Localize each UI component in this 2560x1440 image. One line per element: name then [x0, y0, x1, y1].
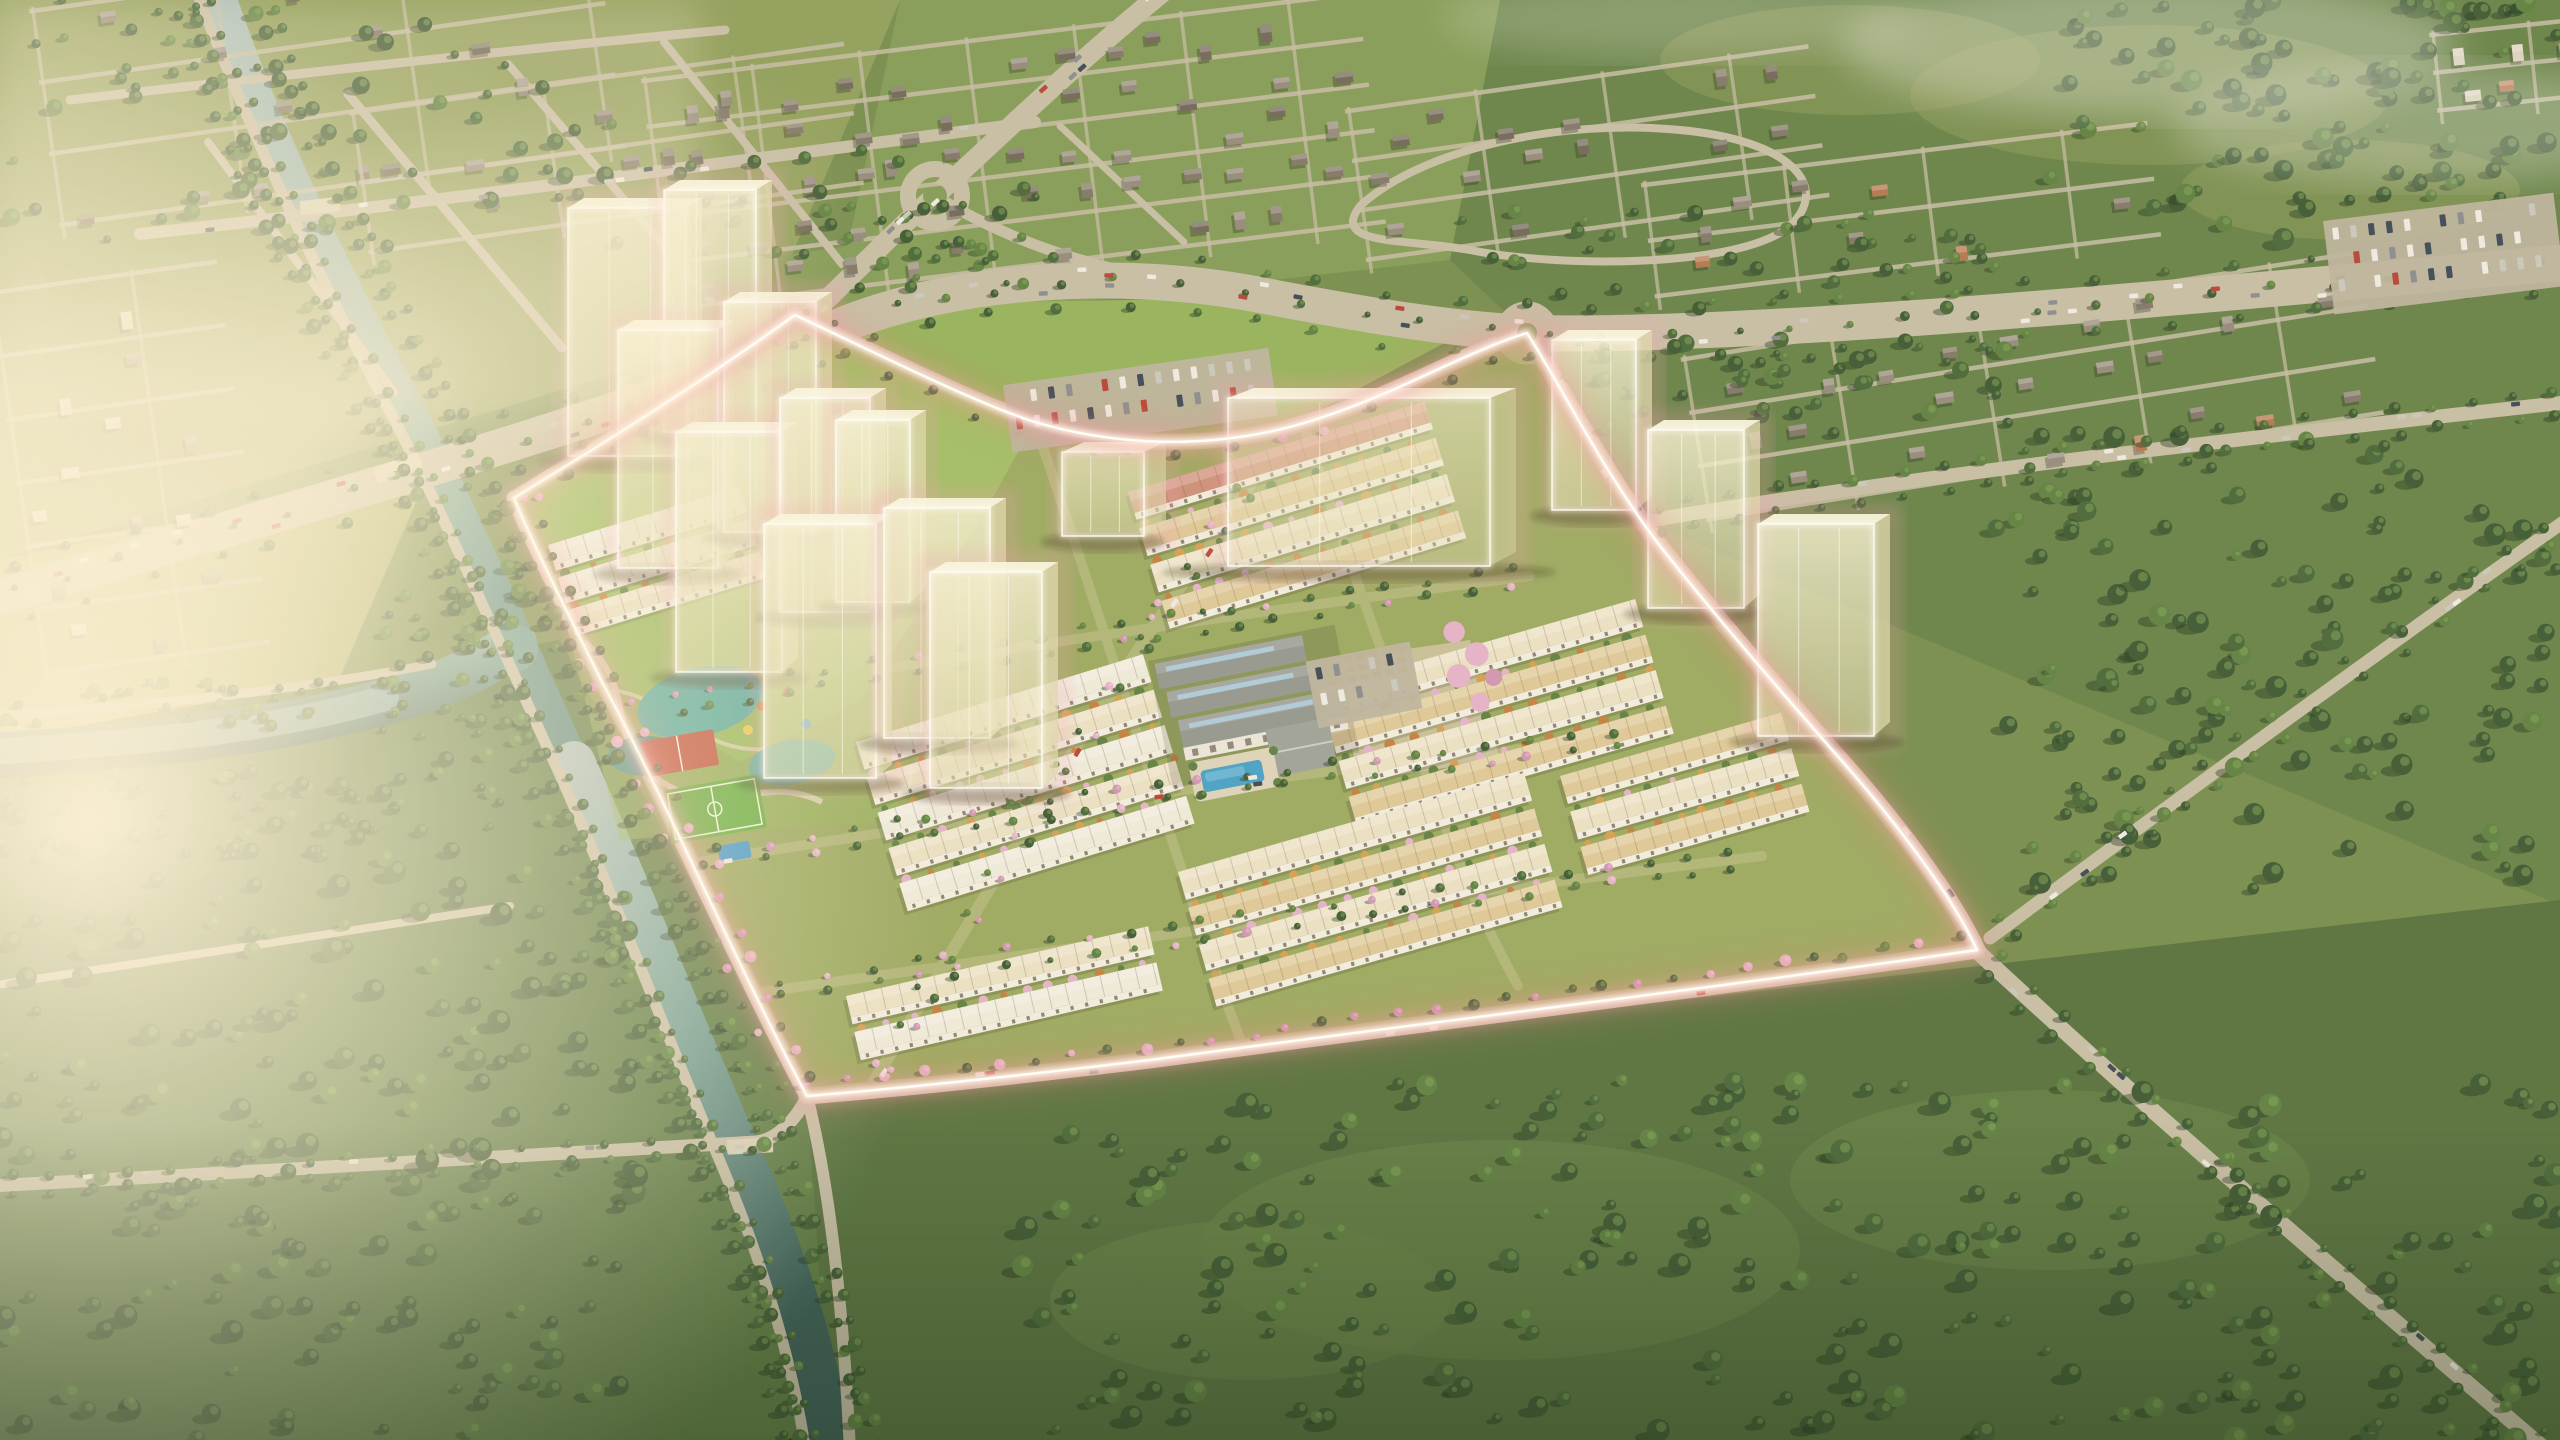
sunlight-haze-overlay	[0, 0, 2560, 1440]
scene-canvas	[0, 0, 2560, 1440]
aerial-development-render	[0, 0, 2560, 1440]
